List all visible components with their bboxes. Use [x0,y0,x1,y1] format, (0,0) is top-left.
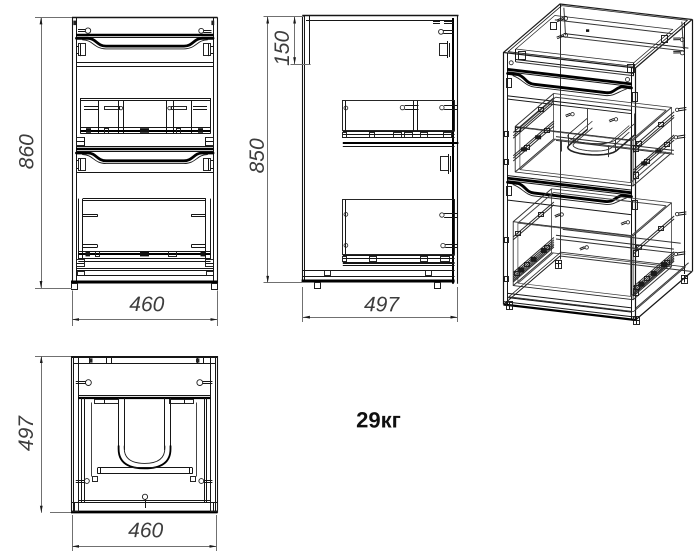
svg-text:150: 150 [271,31,294,66]
svg-text:860: 860 [15,134,38,169]
svg-text:850: 850 [246,138,269,173]
svg-text:460: 460 [129,293,164,316]
svg-text:29кг: 29кг [356,407,401,432]
svg-text:497: 497 [364,293,400,316]
svg-text:460: 460 [128,519,163,542]
svg-text:497: 497 [15,415,38,451]
